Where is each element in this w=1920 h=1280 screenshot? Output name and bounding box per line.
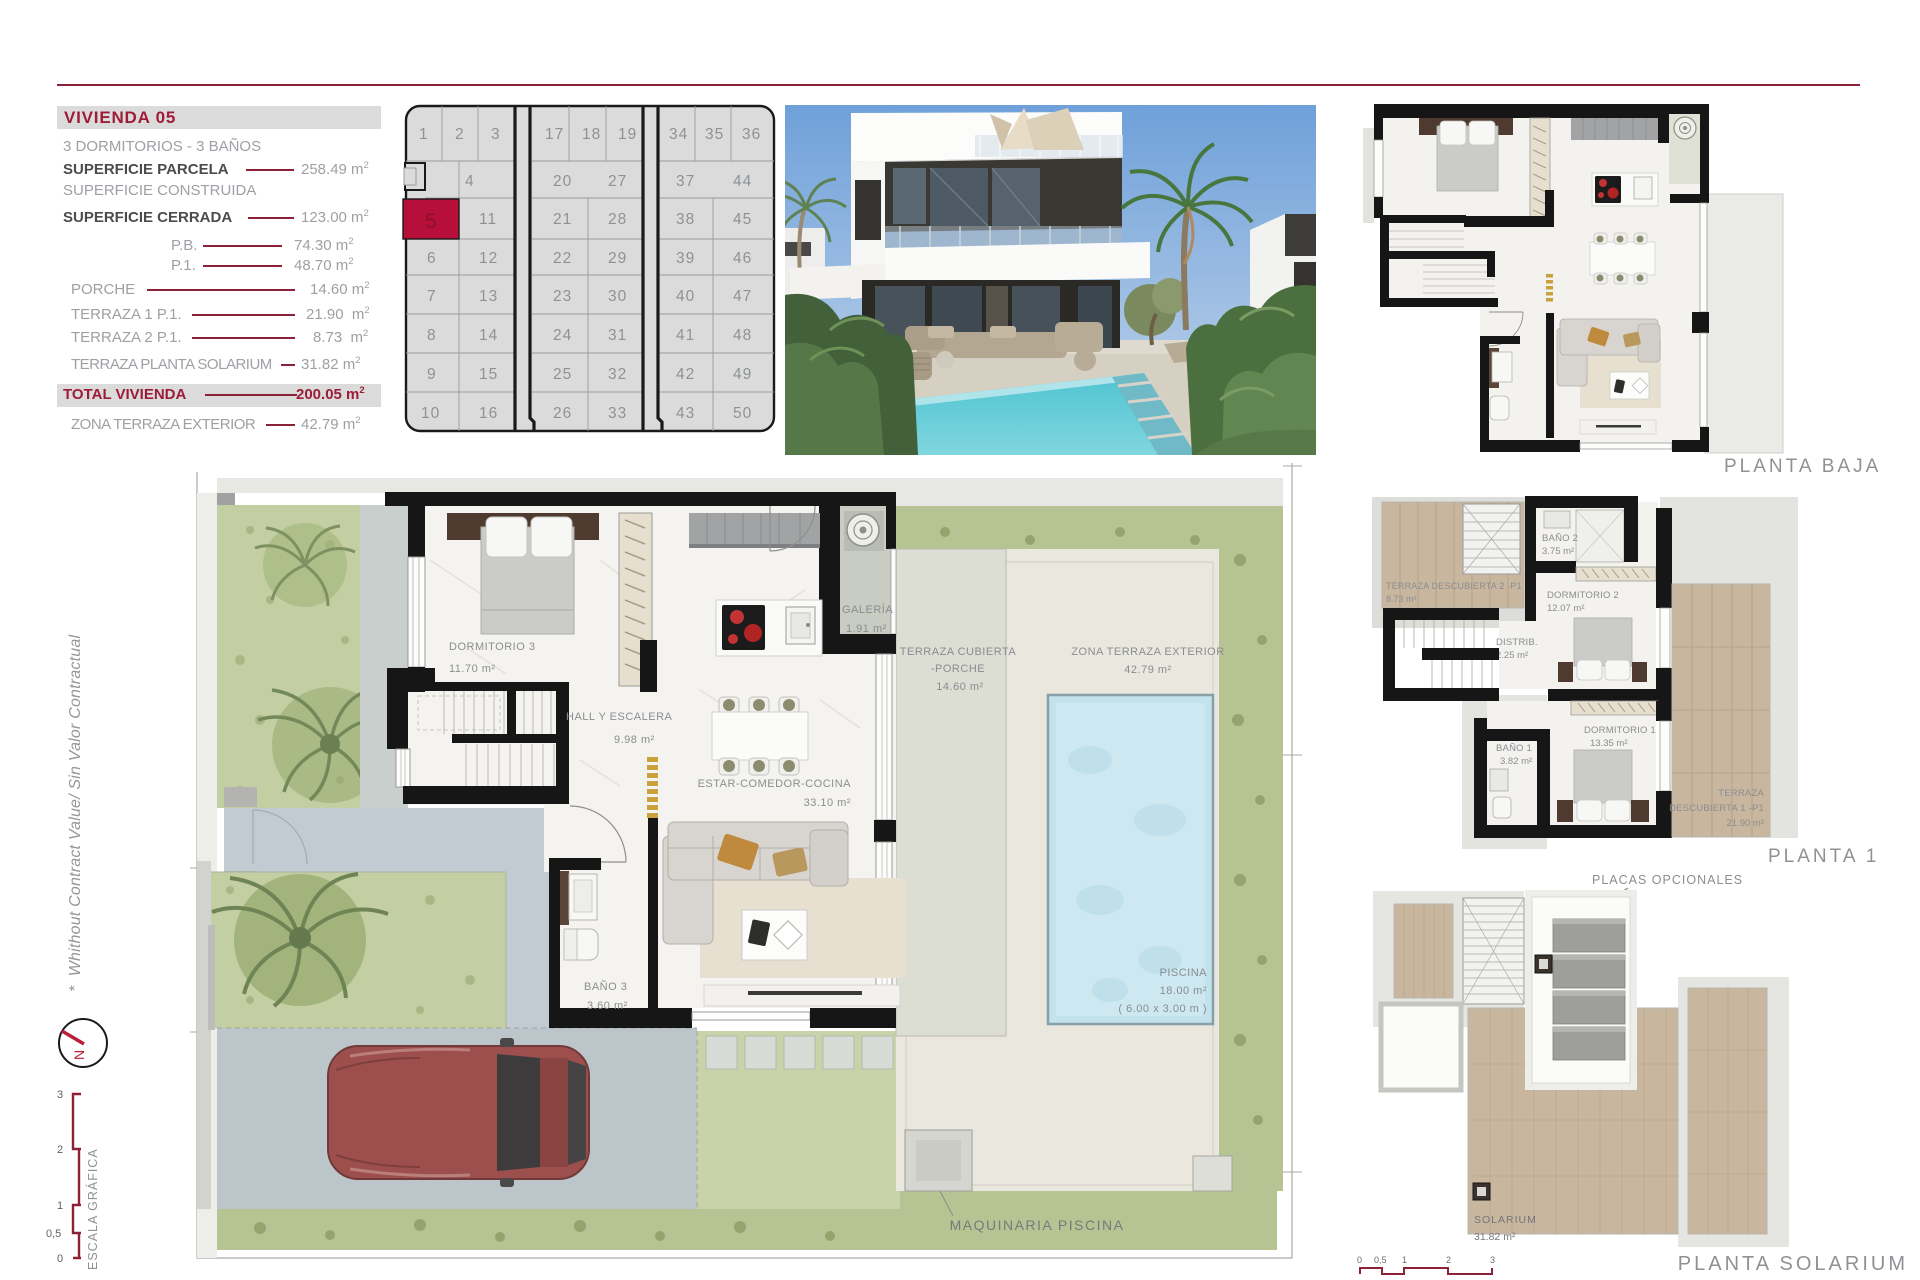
svg-text:24: 24 (553, 327, 572, 344)
svg-text:14.60 m²: 14.60 m² (936, 681, 983, 693)
svg-text:PLANTA SOLARIUM: PLANTA SOLARIUM (1678, 1253, 1908, 1275)
svg-text:18.00 m²: 18.00 m² (1160, 985, 1207, 997)
svg-text:41: 41 (676, 327, 695, 344)
svg-text:22: 22 (553, 250, 572, 267)
svg-text:40: 40 (676, 288, 695, 305)
svg-text:BAÑO 1: BAÑO 1 (1496, 743, 1532, 754)
svg-text:ESTAR-COMEDOR-COCINA: ESTAR-COMEDOR-COCINA (698, 778, 852, 790)
svg-text:19: 19 (618, 126, 637, 143)
svg-text:28: 28 (608, 211, 627, 228)
svg-text:46: 46 (733, 250, 752, 267)
svg-text:15: 15 (479, 366, 498, 383)
svg-text:( 6.00 x 3.00 m ): ( 6.00 x 3.00 m ) (1118, 1003, 1207, 1015)
svg-text:35: 35 (705, 126, 724, 143)
svg-text:MAQUINARIA PISCINA: MAQUINARIA PISCINA (950, 1217, 1125, 1233)
svg-text:12: 12 (479, 250, 498, 267)
svg-text:3.60 m²: 3.60 m² (587, 1000, 628, 1012)
svg-text:3.75 m²: 3.75 m² (1542, 546, 1574, 557)
svg-text:2: 2 (455, 126, 465, 143)
svg-text:33: 33 (608, 405, 627, 422)
svg-text:31: 31 (608, 327, 627, 344)
svg-text:50: 50 (733, 405, 752, 422)
svg-text:1.91 m²: 1.91 m² (846, 623, 887, 635)
svg-text:29: 29 (608, 250, 627, 267)
svg-text:27: 27 (608, 173, 627, 190)
svg-text:33.10 m²: 33.10 m² (804, 797, 851, 809)
svg-text:-PORCHE: -PORCHE (931, 663, 985, 675)
svg-text:13.35 m²: 13.35 m² (1590, 738, 1628, 749)
svg-text:48: 48 (733, 327, 752, 344)
svg-text:0,5: 0,5 (46, 1228, 61, 1240)
svg-text:25: 25 (553, 366, 572, 383)
svg-text:DISTRIB.: DISTRIB. (1496, 637, 1538, 648)
svg-text:1: 1 (57, 1200, 63, 1212)
svg-text:5: 5 (425, 210, 437, 233)
svg-text:38: 38 (676, 211, 695, 228)
svg-text:37: 37 (676, 173, 695, 190)
svg-text:6: 6 (427, 250, 437, 267)
svg-text:4: 4 (465, 173, 475, 190)
svg-text:N: N (71, 1050, 87, 1060)
svg-text:TERRAZA CUBIERTA: TERRAZA CUBIERTA (900, 646, 1017, 658)
svg-text:10: 10 (421, 405, 440, 422)
svg-text:31.82 m²: 31.82 m² (1474, 1231, 1516, 1243)
svg-text:17: 17 (545, 126, 564, 143)
svg-text:20: 20 (553, 173, 572, 190)
svg-text:PLANTA 1: PLANTA 1 (1768, 846, 1879, 867)
svg-text:HALL Y ESCALERA: HALL Y ESCALERA (566, 711, 673, 723)
svg-text:GALERÍA: GALERÍA (842, 603, 893, 616)
svg-text:11: 11 (479, 211, 497, 228)
svg-text:DORMITORIO 2: DORMITORIO 2 (1547, 590, 1619, 601)
svg-text:12.07 m²: 12.07 m² (1547, 603, 1585, 614)
svg-text:42: 42 (676, 366, 695, 383)
svg-text:BAÑO 2: BAÑO 2 (1542, 533, 1578, 544)
svg-text:0: 0 (57, 1253, 63, 1265)
svg-text:BAÑO 3: BAÑO 3 (584, 980, 627, 993)
svg-text:2: 2 (1446, 1255, 1451, 1265)
svg-text:0,5: 0,5 (1374, 1255, 1387, 1265)
svg-text:9: 9 (427, 366, 437, 383)
svg-text:1: 1 (419, 126, 429, 143)
svg-text:3: 3 (1490, 1255, 1495, 1265)
svg-text:47: 47 (733, 288, 752, 305)
svg-text:14: 14 (479, 327, 498, 344)
svg-text:36: 36 (742, 126, 761, 143)
svg-text:11.70 m²: 11.70 m² (449, 663, 496, 675)
svg-text:SOLARIUM: SOLARIUM (1474, 1214, 1537, 1226)
svg-text:3.82 m²: 3.82 m² (1500, 756, 1532, 767)
svg-text:DESCUBIERTA 1 -P1: DESCUBIERTA 1 -P1 (1669, 803, 1764, 814)
svg-text:2.25 m²: 2.25 m² (1496, 650, 1528, 661)
svg-text:23: 23 (553, 288, 572, 305)
svg-text:13: 13 (479, 288, 498, 305)
svg-text:9.98 m²: 9.98 m² (614, 734, 655, 746)
svg-text:8.73 m²: 8.73 m² (1386, 594, 1417, 604)
svg-text:ZONA TERRAZA EXTERIOR: ZONA TERRAZA EXTERIOR (1071, 646, 1224, 658)
svg-text:45: 45 (733, 211, 752, 228)
svg-text:0: 0 (1357, 1255, 1362, 1265)
svg-text:7: 7 (427, 288, 437, 305)
svg-text:PLACAS OPCIONALES: PLACAS OPCIONALES (1592, 873, 1743, 887)
svg-text:16: 16 (479, 405, 498, 422)
svg-text:39: 39 (676, 250, 695, 267)
svg-text:49: 49 (733, 366, 752, 383)
svg-text:DORMITORIO 3: DORMITORIO 3 (449, 641, 535, 653)
svg-text:TERRAZA DESCUBIERTA 2 -P1: TERRAZA DESCUBIERTA 2 -P1 (1386, 581, 1522, 591)
svg-text:TERRAZA: TERRAZA (1718, 788, 1764, 799)
svg-text:34: 34 (669, 126, 688, 143)
svg-text:DORMITORIO 1: DORMITORIO 1 (1584, 725, 1656, 736)
svg-text:ESCALA GRÁFICA: ESCALA GRÁFICA (85, 1148, 100, 1270)
svg-text:30: 30 (608, 288, 627, 305)
svg-text:21: 21 (553, 211, 572, 228)
svg-text:26: 26 (553, 405, 572, 422)
svg-text:2: 2 (57, 1144, 63, 1156)
svg-text:8: 8 (427, 327, 437, 344)
svg-text:3: 3 (491, 126, 501, 143)
svg-text:43: 43 (676, 405, 695, 422)
svg-text:3: 3 (57, 1089, 63, 1101)
svg-text:1: 1 (1402, 1255, 1407, 1265)
svg-text:18: 18 (582, 126, 601, 143)
svg-text:42.79 m²: 42.79 m² (1124, 664, 1171, 676)
svg-text:PLANTA BAJA: PLANTA BAJA (1724, 456, 1881, 477)
svg-text:PISCINA: PISCINA (1159, 967, 1207, 979)
svg-text:32: 32 (608, 366, 627, 383)
svg-text:21.90 m²: 21.90 m² (1727, 818, 1765, 829)
svg-text:44: 44 (733, 173, 752, 190)
